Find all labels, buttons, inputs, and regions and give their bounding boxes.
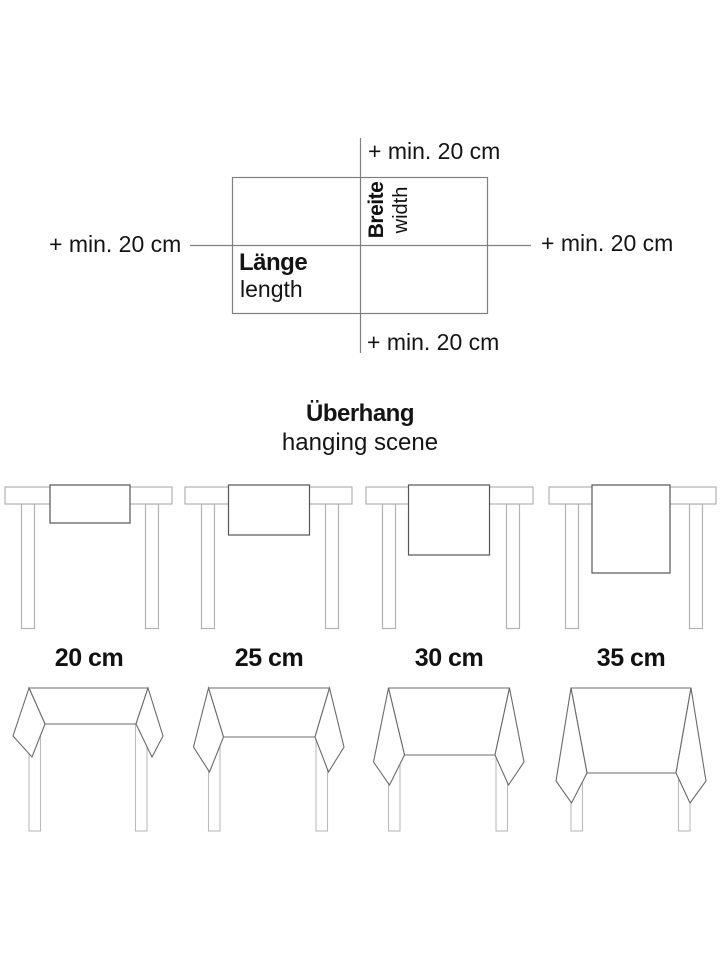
min-right-label: + min. 20 cm xyxy=(541,231,673,256)
overhang-title-de: Überhang xyxy=(0,401,720,427)
length-label-de: Länge xyxy=(239,250,307,276)
width-label-block: Breite width xyxy=(364,175,414,245)
drape-top-1 xyxy=(29,688,148,724)
min-top-label: + min. 20 cm xyxy=(368,139,500,164)
table-draped-3 xyxy=(374,688,525,831)
table-draped-2 xyxy=(194,688,345,831)
overhang-size-30: 30 cm xyxy=(389,644,509,673)
table-draped-1 xyxy=(13,688,163,831)
tablecloth-30 xyxy=(409,485,490,555)
overhang-size-35: 35 cm xyxy=(571,644,691,673)
drape-top-4 xyxy=(571,688,691,773)
drape-top-2 xyxy=(209,688,330,737)
overhang-title-en: hanging scene xyxy=(0,430,720,456)
tables-front-view xyxy=(5,485,716,629)
diagram-canvas xyxy=(0,0,720,960)
overhang-size-20: 20 cm xyxy=(29,644,149,673)
table-front-2 xyxy=(185,485,352,629)
table-front-3 xyxy=(366,485,533,629)
table-front-4 xyxy=(549,485,716,629)
length-label-en: length xyxy=(240,277,303,302)
width-label-en: width xyxy=(389,175,414,245)
tables-draped-view xyxy=(13,688,706,831)
width-label-de: Breite xyxy=(364,175,389,245)
table-front-1 xyxy=(5,485,172,629)
tablecloth-25 xyxy=(229,485,310,535)
dimension-diagram xyxy=(190,138,531,353)
drape-top-3 xyxy=(389,688,510,755)
overhang-size-25: 25 cm xyxy=(209,644,329,673)
min-bottom-label: + min. 20 cm xyxy=(367,330,499,355)
min-left-label: + min. 20 cm xyxy=(49,232,181,257)
table-draped-4 xyxy=(556,688,706,831)
tablecloth-20 xyxy=(50,485,130,523)
tablecloth-35 xyxy=(592,485,670,573)
